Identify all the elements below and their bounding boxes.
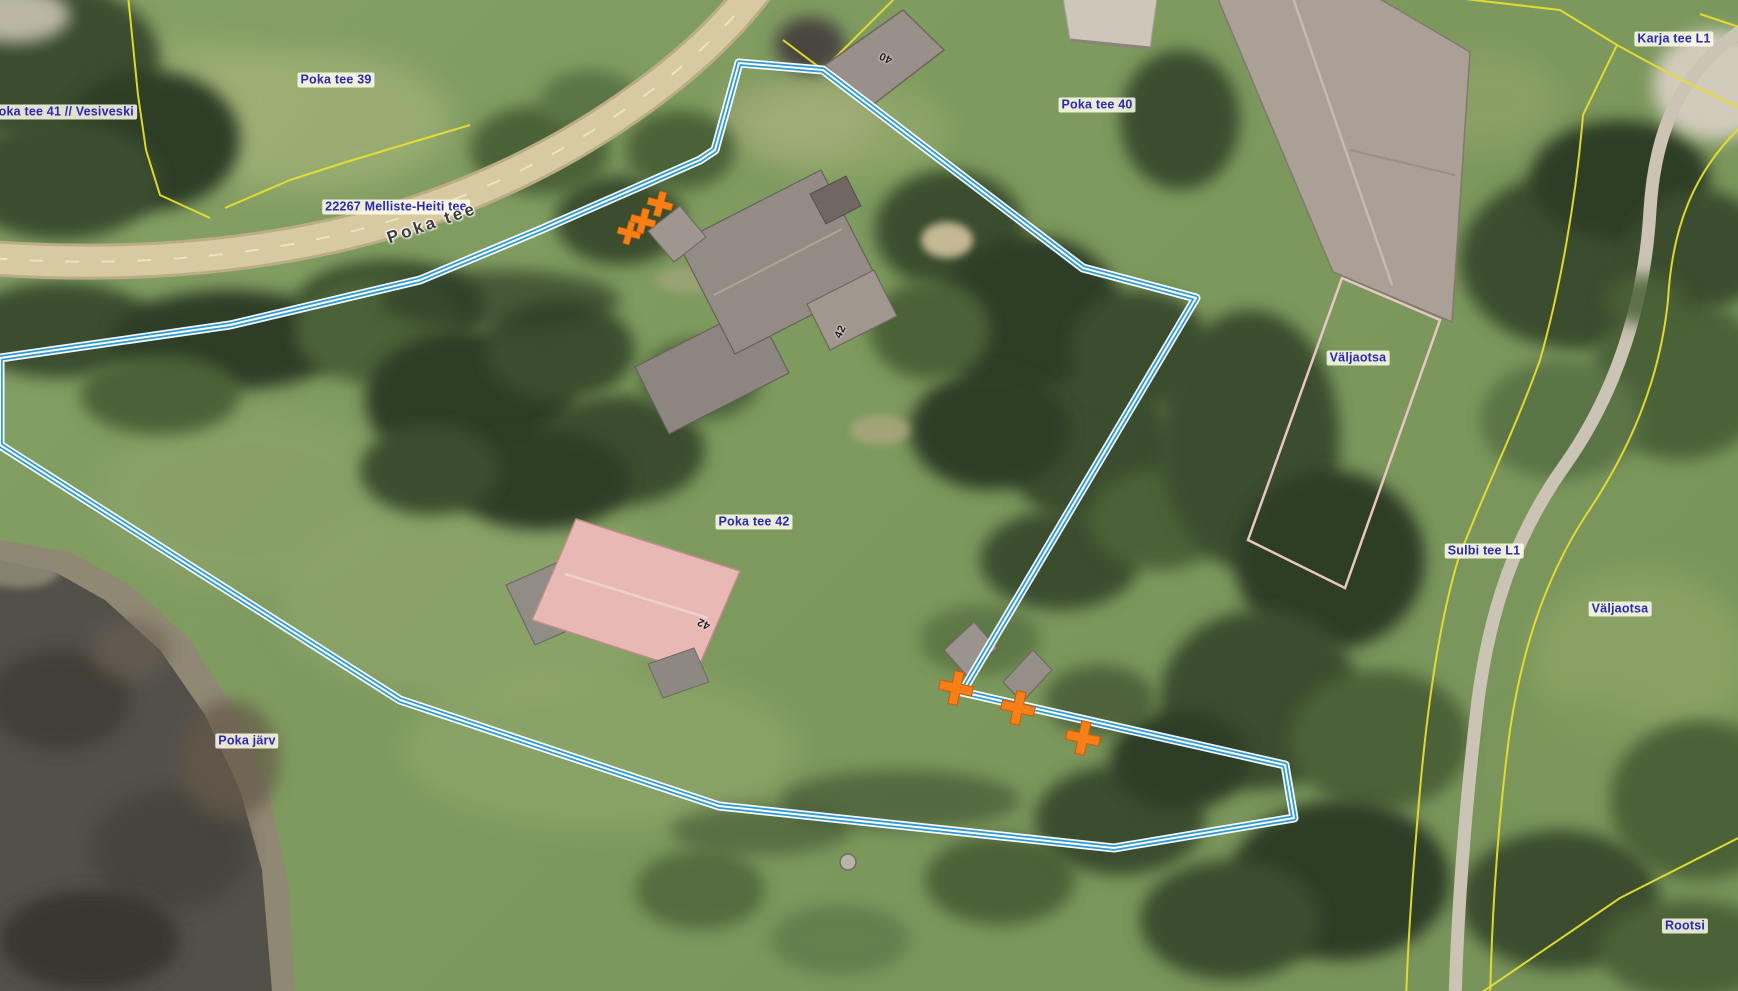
label-poka-tee-41: Poka tee 41 // Vesiveski: [0, 105, 137, 120]
label-poka-tee-40: Poka tee 40: [1059, 98, 1136, 113]
boundary-marker: [998, 688, 1038, 728]
map-canvas[interactable]: Poka tee 41 // Vesiveski Poka tee 39 222…: [0, 0, 1738, 991]
well: [840, 854, 856, 870]
label-poka-jarv: Poka järv: [215, 734, 278, 749]
building-east-large: [1215, 0, 1470, 322]
label-poka-tee-39: Poka tee 39: [298, 73, 375, 88]
label-rootsi: Rootsi: [1662, 919, 1708, 934]
label-valjaotsa-north: Väljaotsa: [1327, 351, 1390, 366]
label-poka-tee-42: Poka tee 42: [716, 515, 793, 530]
label-karja-tee-l1: Karja tee L1: [1634, 32, 1713, 47]
tree-overhang: [1605, 275, 1685, 325]
label-valjaotsa-east: Väljaotsa: [1589, 602, 1652, 617]
aerial-layer: [0, 0, 1738, 991]
label-sulbi-tee-l1: Sulbi tee L1: [1445, 544, 1524, 559]
